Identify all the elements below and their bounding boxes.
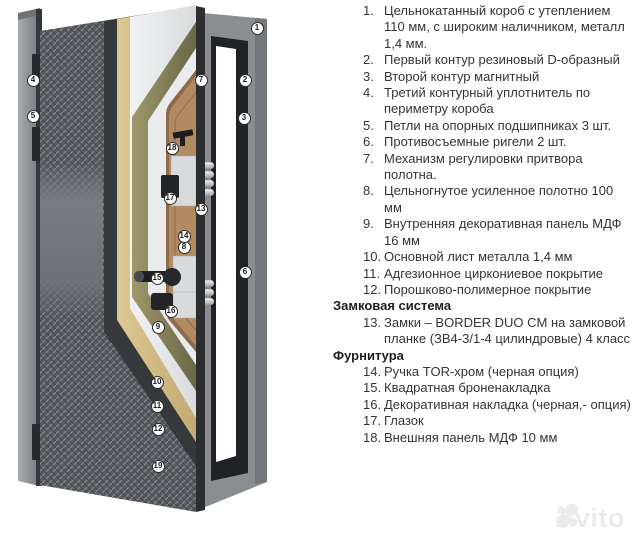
diagram-marker-13: 13 bbox=[195, 203, 208, 216]
diagram-marker-17: 17 bbox=[164, 192, 177, 205]
diagram-marker-1: 1 bbox=[251, 22, 264, 35]
diagram-marker-7: 7 bbox=[195, 74, 208, 87]
diagram-marker-12: 12 bbox=[152, 423, 165, 436]
legend-item-number: 7. bbox=[363, 151, 384, 184]
legend-item-number: 9. bbox=[363, 216, 384, 249]
legend-item-text: Ручка TOR-хром (черная опция) bbox=[384, 364, 633, 380]
legend: 1.Цельнокатанный короб с утеплением 110 … bbox=[333, 3, 633, 446]
legend-item-text: Противосъемные ригели 2 шт. bbox=[384, 134, 633, 150]
legend-item-text: Механизм регулировки притвора полотна. bbox=[384, 151, 633, 184]
legend-item: 8.Цельногнутое усиленное полотно 100 мм bbox=[333, 183, 633, 216]
legend-item-text: Замки – BORDER DUO CM на замковой планке… bbox=[384, 315, 633, 348]
legend-heading: Фурнитура bbox=[333, 348, 633, 364]
legend-item-number: 15. bbox=[363, 380, 384, 396]
legend-item-number: 4. bbox=[363, 85, 384, 118]
legend-item-number: 5. bbox=[363, 118, 384, 134]
diagram-marker-16: 16 bbox=[165, 305, 178, 318]
legend-item: 9.Внутренняя декоративная панель МДФ 16 … bbox=[333, 216, 633, 249]
legend-item-number: 10. bbox=[363, 249, 384, 265]
legend-item-number: 11. bbox=[363, 266, 384, 282]
legend-item-number: 14. bbox=[363, 364, 384, 380]
legend-item: 3.Второй контур магнитный bbox=[333, 69, 633, 85]
legend-item-text: Цельнокатанный короб с утеплением 110 мм… bbox=[384, 3, 633, 52]
legend-item-text: Квадратная броненакладка bbox=[384, 380, 633, 396]
legend-heading: Замковая система bbox=[333, 298, 633, 314]
legend-item: 16.Декоративная накладка (черная,- опция… bbox=[333, 397, 633, 413]
legend-item: 12.Порошково-полимерное покрытие bbox=[333, 282, 633, 298]
diagram-marker-2: 2 bbox=[239, 74, 252, 87]
legend-item-text: Третий контурный уплотнитель по периметр… bbox=[384, 85, 633, 118]
legend-item: 14.Ручка TOR-хром (черная опция) bbox=[333, 364, 633, 380]
diagram-marker-10: 10 bbox=[151, 376, 164, 389]
legend-item-text: Внешняя панель МДФ 10 мм bbox=[384, 430, 633, 446]
legend-item-text: Второй контур магнитный bbox=[384, 69, 633, 85]
avito-logo-icon bbox=[556, 503, 581, 529]
legend-item: 4.Третий контурный уплотнитель по периме… bbox=[333, 85, 633, 118]
legend-item-number: 13. bbox=[363, 315, 384, 348]
legend-item: 17.Глазок bbox=[333, 413, 633, 429]
diagram-marker-3: 3 bbox=[238, 112, 251, 125]
legend-item-text: Порошково-полимерное покрытие bbox=[384, 282, 633, 298]
legend-item-number: 17. bbox=[363, 413, 384, 429]
legend-item-text: Внутренняя декоративная панель МДФ 16 мм bbox=[384, 216, 633, 249]
legend-item: 10.Основной лист металла 1,4 мм bbox=[333, 249, 633, 265]
legend-item: 11.Адгезионное циркониевое покрытие bbox=[333, 266, 633, 282]
diagram-marker-4: 4 bbox=[27, 74, 40, 87]
legend-item-number: 12. bbox=[363, 282, 384, 298]
legend-item: 7.Механизм регулировки притвора полотна. bbox=[333, 151, 633, 184]
legend-item: 5.Петли на опорных подшипниках 3 шт. bbox=[333, 118, 633, 134]
legend-item-text: Декоративная накладка (черная,- опция) bbox=[384, 397, 633, 413]
diagram-marker-5: 5 bbox=[27, 110, 40, 123]
watermark: Avito bbox=[556, 503, 625, 534]
legend-item-text: Основной лист металла 1,4 мм bbox=[384, 249, 633, 265]
legend-item-number: 8. bbox=[363, 183, 384, 216]
diagram-marker-14: 14 bbox=[178, 230, 191, 243]
diagram-marker-6: 6 bbox=[239, 266, 252, 279]
legend-item: 2.Первый контур резиновый D-образный bbox=[333, 52, 633, 68]
legend-item-number: 2. bbox=[363, 52, 384, 68]
legend-item-number: 6. bbox=[363, 134, 384, 150]
legend-item-text: Петли на опорных подшипниках 3 шт. bbox=[384, 118, 633, 134]
legend-item-text: Глазок bbox=[384, 413, 633, 429]
legend-item-number: 3. bbox=[363, 69, 384, 85]
legend-item-text: Адгезионное циркониевое покрытие bbox=[384, 266, 633, 282]
legend-item-number: 18. bbox=[363, 430, 384, 446]
legend-item: 15.Квадратная броненакладка bbox=[333, 380, 633, 396]
legend-item-text: Первый контур резиновый D-образный bbox=[384, 52, 633, 68]
legend-item: 13.Замки – BORDER DUO CM на замковой пла… bbox=[333, 315, 633, 348]
legend-item: 18.Внешняя панель МДФ 10 мм bbox=[333, 430, 633, 446]
legend-item-number: 1. bbox=[363, 3, 384, 52]
diagram-marker-19: 19 bbox=[152, 460, 165, 473]
diagram-marker-15: 15 bbox=[151, 272, 164, 285]
legend-item-number: 16. bbox=[363, 397, 384, 413]
diagram-marker-9: 9 bbox=[152, 321, 165, 334]
legend-item: 6.Противосъемные ригели 2 шт. bbox=[333, 134, 633, 150]
legend-item: 1.Цельнокатанный короб с утеплением 110 … bbox=[333, 3, 633, 52]
legend-item-text: Цельногнутое усиленное полотно 100 мм bbox=[384, 183, 633, 216]
diagram-marker-11: 11 bbox=[151, 400, 164, 413]
diagram-marker-18: 18 bbox=[166, 142, 179, 155]
